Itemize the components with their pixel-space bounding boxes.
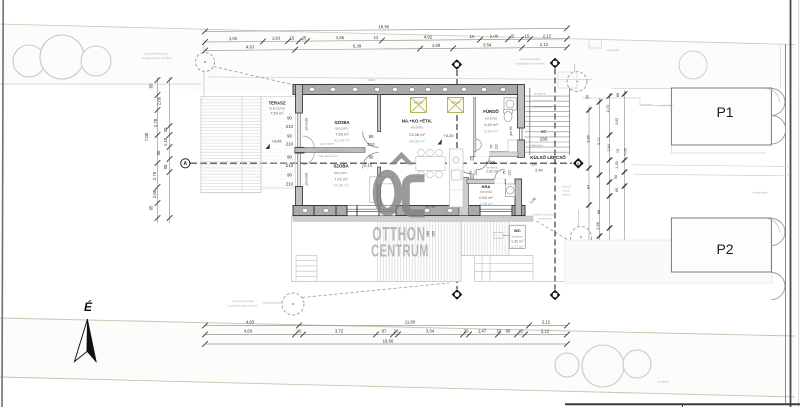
svg-text:87: 87 (382, 329, 387, 334)
svg-text:65: 65 (615, 188, 619, 192)
svg-text:90: 90 (614, 175, 618, 179)
svg-text:2,05: 2,05 (157, 96, 162, 105)
svg-text:30: 30 (163, 127, 168, 132)
svg-text:3,72: 3,72 (335, 329, 344, 334)
svg-text:7,53 m²: 7,53 m² (335, 132, 349, 137)
svg-text:1,10: 1,10 (163, 137, 168, 146)
svg-text:75: 75 (489, 145, 493, 149)
svg-text:210: 210 (367, 142, 375, 147)
svg-text:+3,20: +3,20 (443, 133, 454, 138)
svg-text:(tulajdonosok szerint): (tulajdonosok szerint) (515, 62, 544, 66)
svg-text:150: 150 (431, 231, 435, 237)
svg-text:100*150*5: 100*150*5 (320, 142, 335, 146)
svg-text:28: 28 (394, 329, 399, 334)
svg-text:(tulajdonosok szerint): (tulajdonosok szerint) (228, 304, 257, 308)
svg-text:75: 75 (469, 171, 473, 175)
svg-text:vendégl: vendégl (658, 380, 669, 384)
svg-text:210: 210 (507, 170, 511, 176)
svg-text:180: 180 (426, 231, 430, 237)
svg-text:A: A (183, 161, 187, 167)
svg-text:88: 88 (597, 210, 601, 214)
svg-text:terasz: terasz (562, 193, 571, 197)
svg-text:10: 10 (497, 329, 502, 334)
svg-text:1,08 m²: 1,08 m² (479, 201, 493, 206)
svg-text:4,92: 4,92 (424, 34, 433, 39)
svg-text:1,35: 1,35 (615, 161, 619, 168)
svg-text:210: 210 (286, 163, 294, 168)
svg-text:3,34: 3,34 (426, 329, 435, 334)
svg-text:2,78: 2,78 (153, 118, 158, 127)
svg-text:WC: WC (514, 228, 521, 233)
svg-text:90: 90 (586, 95, 590, 99)
svg-text:SZOBA: SZOBA (334, 120, 350, 125)
svg-text:P1: P1 (716, 104, 733, 120)
svg-text:P2: P2 (716, 241, 733, 257)
svg-text:2,08: 2,08 (152, 189, 157, 198)
svg-text:2,00: 2,00 (490, 34, 499, 39)
svg-text:2,02 m²: 2,02 m² (486, 169, 499, 173)
svg-text:90: 90 (156, 150, 161, 155)
svg-text:10: 10 (470, 34, 475, 39)
svg-text:25: 25 (510, 34, 515, 39)
svg-text:KRA: KRA (482, 184, 491, 189)
svg-text:pm 90: pm 90 (509, 126, 513, 135)
svg-text:97*97*5: 97*97*5 (534, 92, 545, 96)
svg-text:4,63: 4,63 (246, 44, 255, 49)
svg-text:210: 210 (286, 142, 294, 147)
svg-text:4,42 m²: 4,42 m² (484, 122, 498, 127)
svg-text:90: 90 (287, 155, 292, 160)
svg-text:7,00: 7,00 (624, 148, 628, 155)
svg-text:3,02: 3,02 (615, 118, 619, 125)
svg-text:4,63: 4,63 (244, 329, 253, 334)
svg-text:18,56: 18,56 (378, 24, 389, 29)
svg-text:75: 75 (502, 171, 506, 175)
svg-text:48/25: 48/25 (367, 78, 375, 82)
svg-text:4,83: 4,83 (246, 319, 255, 324)
svg-text:növényzet: növényzet (538, 217, 552, 221)
svg-text:6,39: 6,39 (353, 43, 362, 48)
svg-text:65: 65 (149, 83, 154, 88)
svg-text:2,12: 2,12 (540, 42, 549, 47)
svg-text:-100: -100 (530, 163, 537, 167)
svg-text:23,06 m²: 23,06 m² (409, 132, 425, 137)
svg-text:NA.+KO.+ÉTK.: NA.+KO.+ÉTK. (402, 119, 433, 124)
svg-text:90: 90 (287, 134, 292, 139)
svg-text:25: 25 (302, 35, 307, 40)
svg-text:pm 0,00: pm 0,00 (305, 118, 309, 131)
svg-text:5,49 m²: 5,49 m² (484, 129, 498, 134)
svg-text:2,15: 2,15 (364, 163, 373, 168)
svg-text:vendégház: vendégház (752, 191, 768, 195)
svg-text:90: 90 (287, 173, 292, 178)
svg-text:szomszédos utca: szomszédos utca (145, 52, 169, 56)
svg-text:kerámia: kerámia (480, 190, 492, 194)
svg-text:pm 0,00: pm 0,00 (305, 173, 309, 186)
svg-text:210: 210 (494, 144, 498, 150)
svg-text:2,70: 2,70 (606, 105, 610, 112)
svg-text:(tulajdonosok szerint): (tulajdonosok szerint) (142, 56, 171, 60)
svg-text:2,12: 2,12 (543, 33, 552, 38)
svg-text:2,12: 2,12 (541, 329, 550, 334)
svg-text:2,79: 2,79 (152, 171, 157, 180)
svg-text:pm 90: pm 90 (426, 204, 436, 208)
svg-text:1,27 m²: 1,27 m² (511, 245, 524, 249)
svg-text:FÜRDŐ: FÜRDŐ (483, 109, 499, 114)
svg-text:12,43 m²: 12,43 m² (334, 137, 350, 142)
svg-text:5,71: 5,71 (597, 137, 601, 144)
svg-text:210: 210 (286, 182, 294, 187)
svg-text:lam.park.: lam.park. (334, 171, 348, 175)
svg-text:KÖZL.: KÖZL. (486, 160, 497, 165)
svg-text:13,36 m²: 13,36 m² (333, 182, 349, 187)
svg-text:laid dektol fen: laid dektol fen (318, 154, 337, 158)
svg-text:1,83: 1,83 (272, 36, 281, 41)
svg-text:3,54: 3,54 (483, 42, 492, 47)
svg-text:CENTRUM: CENTRUM (371, 242, 429, 261)
svg-text:210: 210 (286, 124, 294, 129)
svg-text:12: 12 (374, 35, 379, 40)
svg-text:18,56: 18,56 (383, 338, 394, 343)
svg-text:7,00: 7,00 (144, 132, 149, 141)
svg-text:3,86: 3,86 (587, 135, 591, 142)
svg-text:É: É (84, 299, 93, 314)
svg-text:vendéglő: vendéglő (607, 48, 620, 52)
svg-text:84: 84 (587, 185, 591, 189)
svg-text:15: 15 (525, 33, 530, 38)
svg-text:3,00: 3,00 (229, 36, 238, 41)
svg-text:szomszéd síkja: szomszéd síkja (232, 299, 253, 303)
svg-text:160: 160 (540, 137, 548, 142)
svg-text:7,54 m²: 7,54 m² (270, 110, 284, 115)
svg-text:0,63 m²: 0,63 m² (479, 195, 493, 200)
svg-text:2,96: 2,96 (596, 222, 600, 229)
svg-text:88: 88 (616, 93, 620, 97)
svg-text:90/140: 90/140 (414, 101, 423, 105)
svg-text:40: 40 (297, 329, 302, 334)
svg-text:7,71 m²: 7,71 m² (334, 176, 348, 181)
svg-text:90: 90 (369, 134, 374, 139)
svg-text:2,12: 2,12 (542, 319, 551, 324)
svg-text:kerámia: kerámia (512, 234, 523, 238)
svg-text:90: 90 (369, 154, 374, 159)
svg-text:210: 210 (474, 170, 478, 176)
svg-text:90: 90 (506, 329, 511, 334)
svg-text:szőlő háló: szőlő háló (659, 104, 673, 108)
svg-text:KÜLSŐ LÉPCSŐ: KÜLSŐ LÉPCSŐ (530, 153, 566, 160)
svg-text:1,32 m²: 1,32 m² (511, 240, 524, 244)
svg-text:28,38 m²: 28,38 m² (409, 139, 425, 144)
svg-text:2,40: 2,40 (535, 169, 542, 173)
svg-text:3,86: 3,86 (336, 35, 345, 40)
svg-text:SZOBA: SZOBA (333, 164, 349, 169)
svg-text:60: 60 (541, 129, 547, 134)
svg-text:emelet lépcső: emelet lépcső (532, 99, 551, 103)
svg-text:30: 30 (464, 329, 469, 334)
svg-text:lam.park.: lam.park. (335, 127, 349, 131)
svg-text:kerámia: kerámia (411, 126, 423, 130)
svg-text:szomszéd ajtó: szomszéd ajtó (520, 57, 540, 61)
svg-text:1,47: 1,47 (478, 329, 487, 334)
svg-text:10: 10 (616, 149, 620, 153)
svg-text:40: 40 (519, 329, 524, 334)
svg-text:15: 15 (290, 36, 295, 41)
svg-text:11,80: 11,80 (405, 319, 416, 324)
svg-text:+3,05: +3,05 (271, 138, 282, 143)
svg-text:65: 65 (149, 205, 154, 210)
svg-text:90: 90 (163, 164, 168, 169)
svg-text:1,68: 1,68 (432, 43, 441, 48)
svg-text:TERASZ: TERASZ (269, 101, 286, 106)
svg-text:1,84: 1,84 (607, 144, 611, 151)
svg-text:kerámia: kerámia (485, 117, 497, 121)
svg-text:90: 90 (287, 116, 292, 121)
svg-text:90/140: 90/140 (451, 101, 460, 105)
